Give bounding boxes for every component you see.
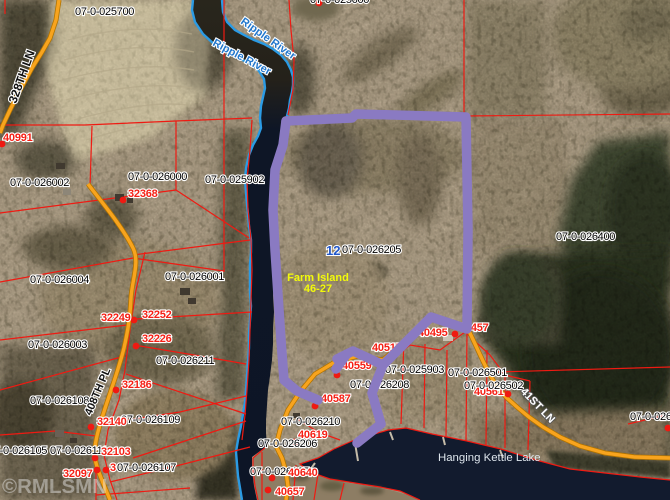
- svg-text:40619: 40619: [298, 429, 328, 441]
- svg-text:40587: 40587: [321, 393, 351, 405]
- svg-text:32252: 32252: [142, 309, 172, 321]
- svg-text:07-0-026004: 07-0-026004: [30, 274, 89, 286]
- svg-text:07-0-025903: 07-0-025903: [385, 364, 444, 376]
- svg-text:07-0-026111: 07-0-026111: [50, 445, 108, 457]
- svg-text:07-0-026107: 07-0-026107: [117, 462, 176, 474]
- svg-text:12: 12: [326, 243, 340, 258]
- svg-text:40640: 40640: [288, 467, 318, 479]
- svg-text:Hanging Kettle Lake: Hanging Kettle Lake: [438, 452, 541, 464]
- svg-text:3: 3: [110, 462, 116, 474]
- svg-text:07-0-026400: 07-0-026400: [556, 231, 615, 243]
- svg-text:32103: 32103: [101, 446, 131, 458]
- svg-text:32226: 32226: [142, 333, 172, 345]
- svg-text:32140: 32140: [97, 416, 127, 428]
- svg-text:07-0-026109: 07-0-026109: [121, 414, 180, 426]
- svg-text:40657: 40657: [275, 486, 305, 498]
- svg-text:07-0-026108: 07-0-026108: [30, 395, 89, 407]
- svg-text:07-0-025600: 07-0-025600: [310, 0, 369, 6]
- svg-text:07-0-026105: 07-0-026105: [0, 445, 47, 457]
- svg-text:07-0-025700: 07-0-025700: [75, 6, 134, 18]
- svg-text:07-0-026002: 07-0-026002: [10, 177, 69, 189]
- svg-text:07-0-0264: 07-0-0264: [630, 411, 670, 423]
- svg-text:07-0-026003: 07-0-026003: [28, 339, 87, 351]
- svg-text:07-0-026502: 07-0-026502: [464, 380, 523, 392]
- svg-text:32249: 32249: [101, 312, 131, 324]
- svg-text:40991: 40991: [3, 132, 33, 144]
- svg-text:32186: 32186: [122, 379, 152, 391]
- svg-text:07-0-026211: 07-0-026211: [156, 355, 214, 367]
- svg-text:46-27: 46-27: [304, 283, 332, 295]
- svg-text:©RMLSMN: ©RMLSMN: [2, 475, 107, 498]
- svg-text:07-0-026001: 07-0-026001: [165, 271, 224, 283]
- svg-text:07-0-026210: 07-0-026210: [281, 416, 340, 428]
- svg-text:07-0-025902: 07-0-025902: [205, 174, 264, 186]
- svg-text:07-0-026205: 07-0-026205: [342, 244, 401, 256]
- svg-text:07-0-026501: 07-0-026501: [448, 367, 507, 379]
- svg-text:32368: 32368: [128, 188, 158, 200]
- svg-text:07-0-026000: 07-0-026000: [128, 171, 187, 183]
